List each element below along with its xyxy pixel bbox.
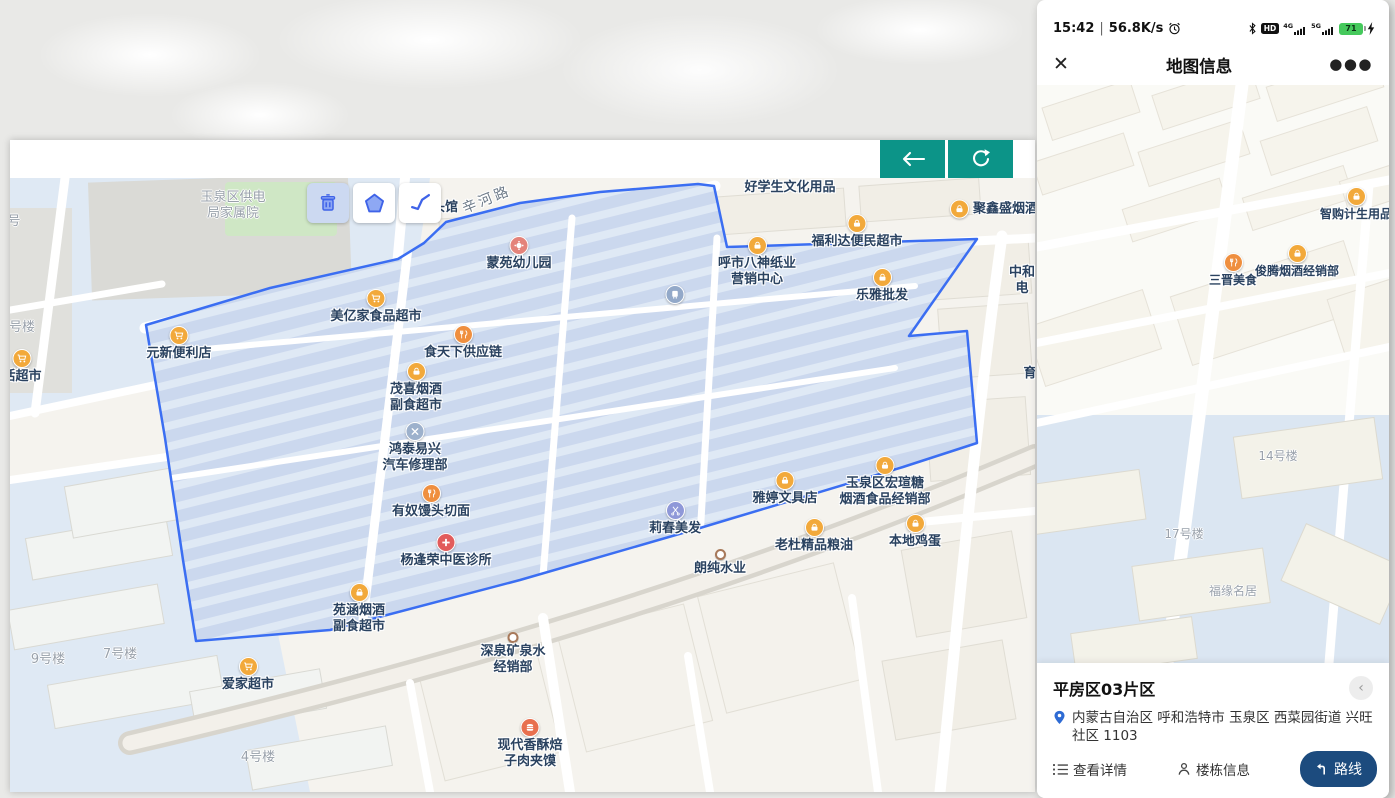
bag-icon (406, 362, 425, 381)
area-9haolou[interactable]: 9号楼 (31, 651, 65, 668)
poi-yangfengrong-zhensuo[interactable]: 杨逢荣中医诊所 (400, 533, 491, 569)
bag-icon (875, 456, 894, 475)
poi-aijia-chaoshi[interactable]: 爱家超市 (222, 657, 274, 693)
charging-bolt-icon (1367, 22, 1375, 35)
poi-label: 玉泉区宏瑄糖烟酒食品经销部 (839, 476, 930, 509)
food-icon (1223, 253, 1242, 272)
hd-voice-icon: HD (1261, 23, 1280, 34)
poi-xiandai-xiangsu[interactable]: 现代香酥焙子肉夹馍 (497, 718, 562, 771)
signal-5g-icon: 5G (1311, 23, 1335, 35)
refresh-icon (970, 148, 992, 170)
bag-icon (775, 471, 794, 490)
poi-label: 苑涵烟酒副食超市 (333, 603, 385, 636)
burger-icon (520, 718, 539, 737)
back-button[interactable] (880, 140, 945, 178)
bag-icon (950, 200, 969, 219)
map-draw-tools (307, 183, 441, 223)
alarm-clock-icon (1168, 22, 1181, 35)
phone-header: ✕ 地图信息 ●●● (1037, 44, 1389, 85)
battery-icon: 71 (1339, 23, 1363, 35)
poi-label: 乐雅批发 (856, 288, 908, 304)
poi-label: 俊腾烟酒经销部 (1255, 264, 1339, 279)
poi-label: 茂喜烟酒副食超市 (390, 382, 442, 415)
poi-zhigou-jisheng[interactable]: 智购计生用品 (1320, 187, 1389, 222)
poi-label: 本地鸡蛋 (889, 534, 941, 550)
polygon-icon (363, 192, 386, 215)
poi-label: 好学生文化用品 (744, 180, 835, 196)
signal-4g-icon: 4G (1283, 23, 1307, 35)
district-title: 平房区03片区 (1053, 676, 1155, 700)
poi-yuanxin-bianlidian[interactable]: 元新便利店 (146, 326, 211, 362)
polyline-icon (409, 192, 432, 215)
window-toolbar (10, 140, 1035, 178)
bag-icon (747, 236, 766, 255)
cart-icon (366, 289, 385, 308)
poi-sanjin-meishi[interactable]: 三晋美食 (1209, 253, 1257, 288)
poi-label: 杨逢荣中医诊所 (400, 553, 491, 569)
food-icon (421, 484, 440, 503)
phone-status-bar: 15:42 | 56.8K/s HD 4G 5G (1037, 0, 1389, 44)
poi-label: 4号楼 (241, 750, 275, 766)
delete-tool-button[interactable] (307, 183, 349, 223)
area-14haolou[interactable]: 14号楼 (1258, 448, 1297, 464)
poi-zhonghe-partial[interactable]: 中和电 (1009, 264, 1035, 298)
close-icon[interactable]: ✕ (1053, 55, 1069, 74)
polygon-tool-button[interactable] (353, 183, 395, 223)
status-time: 15:42 (1053, 21, 1094, 36)
area-17haolou[interactable]: 17号楼 (1164, 526, 1203, 542)
person-icon (1177, 762, 1191, 776)
poi-younu-mantou[interactable]: 有奴馒头切面 (392, 484, 470, 520)
poi-label: 爱家超市 (222, 677, 274, 693)
wrench-icon (405, 422, 424, 441)
location-pin-icon (1053, 710, 1066, 725)
poi-label: 雅婷文具店 (752, 491, 817, 507)
bag-icon (349, 583, 368, 602)
view-details-button[interactable]: 查看详情 (1053, 759, 1127, 779)
poi-shenquan-kuangquanshui[interactable]: 深泉矿泉水经销部 (480, 632, 545, 677)
area-haolou-partial[interactable]: 号楼 (10, 319, 35, 336)
map-canvas[interactable]: 玉泉区供电局家属院号号楼活超市元新便利店美亿家食品超市头馆辛河路蒙苑幼儿园食天下… (10, 178, 1035, 792)
poi-shitianxia[interactable]: 食天下供应链 (424, 325, 502, 361)
phone-map-tiles (1037, 85, 1389, 663)
status-net-speed: 56.8K/s (1109, 21, 1164, 36)
poi-laodu-liangyou[interactable]: 老杜精品粮油 (775, 518, 853, 554)
cart-icon (12, 349, 31, 368)
more-ellipsis-icon[interactable]: ●●● (1329, 57, 1373, 72)
poi-label: 9号楼 (31, 652, 65, 668)
poi-label: 聚鑫盛烟酒 (973, 201, 1035, 217)
poi-hongtai-qixiu[interactable]: 鸿泰易兴汽车修理部 (382, 422, 447, 475)
list-icon (1053, 763, 1068, 776)
poi-fulida-chaoshi[interactable]: 福利达便民超市 (811, 214, 902, 250)
area-gongdianju-jiashuyuan[interactable]: 玉泉区供电局家属院 (200, 189, 265, 223)
poi-yuanhan-yanjiu[interactable]: 苑涵烟酒副食超市 (333, 583, 385, 636)
bag-icon (804, 518, 823, 537)
poi-label: 育 (1023, 366, 1035, 382)
poi-label: 17号楼 (1164, 527, 1203, 542)
trash-icon (317, 192, 339, 214)
poi-label: 元新便利店 (146, 346, 211, 362)
poi-label: 鸿泰易兴汽车修理部 (382, 442, 447, 475)
district-info-card: 平房区03片区 ‹ 内蒙古自治区 呼和浩特市 玉泉区 西菜园街道 兴旺社区 11… (1037, 663, 1389, 798)
poi-meiyijia-chaoshi[interactable]: 美亿家食品超市 (330, 289, 421, 325)
poi-langchun-shuiye[interactable]: 朗纯水业 (694, 549, 746, 577)
arrow-left-icon (900, 151, 926, 167)
poi-mengyuan-youeryuan[interactable]: 蒙苑幼儿园 (486, 236, 551, 272)
phone-map-canvas[interactable]: 智购计生用品三晋美食俊腾烟酒经销部14号楼17号楼福缘名居 (1037, 85, 1389, 663)
poi-label: 福缘名居 (1209, 584, 1257, 599)
poi-maoxi-yanjiu[interactable]: 茂喜烟酒副食超市 (390, 362, 442, 415)
poi-haoxuesheng-wenhua[interactable]: 好学生文化用品 (744, 179, 835, 196)
scissors-icon (665, 501, 684, 520)
transit-icon (666, 285, 685, 304)
dot-icon (714, 549, 725, 560)
poi-label: 呼市八神纸业营销中心 (718, 256, 796, 289)
cart-icon (169, 326, 188, 345)
kid-icon (509, 236, 528, 255)
poi-label: 号楼 (10, 320, 35, 336)
building-info-button[interactable]: 楼栋信息 (1177, 759, 1250, 779)
district-address: 内蒙古自治区 呼和浩特市 玉泉区 西菜园街道 兴旺社区 1103 (1072, 709, 1373, 745)
area-4haolou[interactable]: 4号楼 (241, 749, 275, 766)
poi-yu-partial[interactable]: 育 (1023, 365, 1035, 382)
poi-label: 深泉矿泉水经销部 (480, 644, 545, 677)
poi-label: 现代香酥焙子肉夹馍 (497, 738, 562, 771)
poi-label: 三晋美食 (1209, 273, 1257, 288)
poi-label: 食天下供应链 (424, 345, 502, 361)
collapse-chevron-icon[interactable]: ‹ (1349, 676, 1373, 700)
poi-label: 美亿家食品超市 (330, 309, 421, 325)
poi-leya-pifa[interactable]: 乐雅批发 (856, 268, 908, 304)
phone-screenshot-panel: 15:42 | 56.8K/s HD 4G 5G (1037, 0, 1389, 798)
area-hao-partial[interactable]: 号 (10, 213, 21, 230)
bluetooth-icon (1248, 22, 1257, 35)
status-separator: | (1099, 21, 1103, 36)
cart-icon (238, 657, 257, 676)
district-address-row: 内蒙古自治区 呼和浩特市 玉泉区 西菜园街道 兴旺社区 1103 (1053, 709, 1373, 745)
refresh-button[interactable] (948, 140, 1013, 178)
poi-yating-wenjudian[interactable]: 雅婷文具店 (752, 471, 817, 507)
poi-label: 中和电 (1009, 265, 1035, 298)
route-button[interactable]: 路线 (1300, 751, 1377, 787)
poi-label: 智购计生用品 (1320, 207, 1389, 222)
poi-hongxuan-jingxiaobu[interactable]: 玉泉区宏瑄糖烟酒食品经销部 (839, 456, 930, 509)
bag-icon (1346, 187, 1365, 206)
poi-transit[interactable] (666, 285, 685, 304)
dot-icon (507, 632, 518, 643)
phone-page-title: 地图信息 (1166, 53, 1232, 77)
poi-label: 蒙苑幼儿园 (486, 256, 551, 272)
poi-label: 福利达便民超市 (811, 234, 902, 250)
poi-label: 14号楼 (1258, 449, 1297, 464)
poi-label: 朗纯水业 (694, 561, 746, 577)
poi-label: 7号楼 (103, 647, 137, 663)
food-icon (453, 325, 472, 344)
poi-label: 号 (10, 214, 21, 230)
poi-hushi-bashen[interactable]: 呼市八神纸业营销中心 (718, 236, 796, 289)
medical-icon (436, 533, 455, 552)
poi-junteng-yanjiu[interactable]: 俊腾烟酒经销部 (1255, 244, 1339, 279)
route-turn-icon (1315, 762, 1329, 776)
poi-label: 有奴馒头切面 (392, 504, 470, 520)
desktop-background: 玉泉区供电局家属院号号楼活超市元新便利店美亿家食品超市头馆辛河路蒙苑幼儿园食天下… (0, 0, 1395, 798)
poi-label: 莉春美发 (649, 521, 701, 537)
bag-icon (905, 514, 924, 533)
area-fuyuan-mingju[interactable]: 福缘名居 (1209, 583, 1257, 599)
poi-label: 老杜精品粮油 (775, 538, 853, 554)
polyline-tool-button[interactable] (399, 183, 441, 223)
poi-label: 活超市 (10, 369, 42, 385)
poi-huo-chaoshi[interactable]: 活超市 (10, 349, 42, 385)
poi-label: 玉泉区供电局家属院 (200, 190, 265, 223)
poi-bendi-jidan[interactable]: 本地鸡蛋 (889, 514, 941, 550)
poi-lichun-meifa[interactable]: 莉春美发 (649, 501, 701, 537)
poi-juxinsheng-yanjiu[interactable]: 聚鑫盛烟酒 (950, 200, 1035, 219)
bag-icon (872, 268, 891, 287)
bag-icon (847, 214, 866, 233)
area-7haolou[interactable]: 7号楼 (103, 646, 137, 663)
map-window: 玉泉区供电局家属院号号楼活超市元新便利店美亿家食品超市头馆辛河路蒙苑幼儿园食天下… (10, 140, 1035, 792)
bag-icon (1287, 244, 1306, 263)
